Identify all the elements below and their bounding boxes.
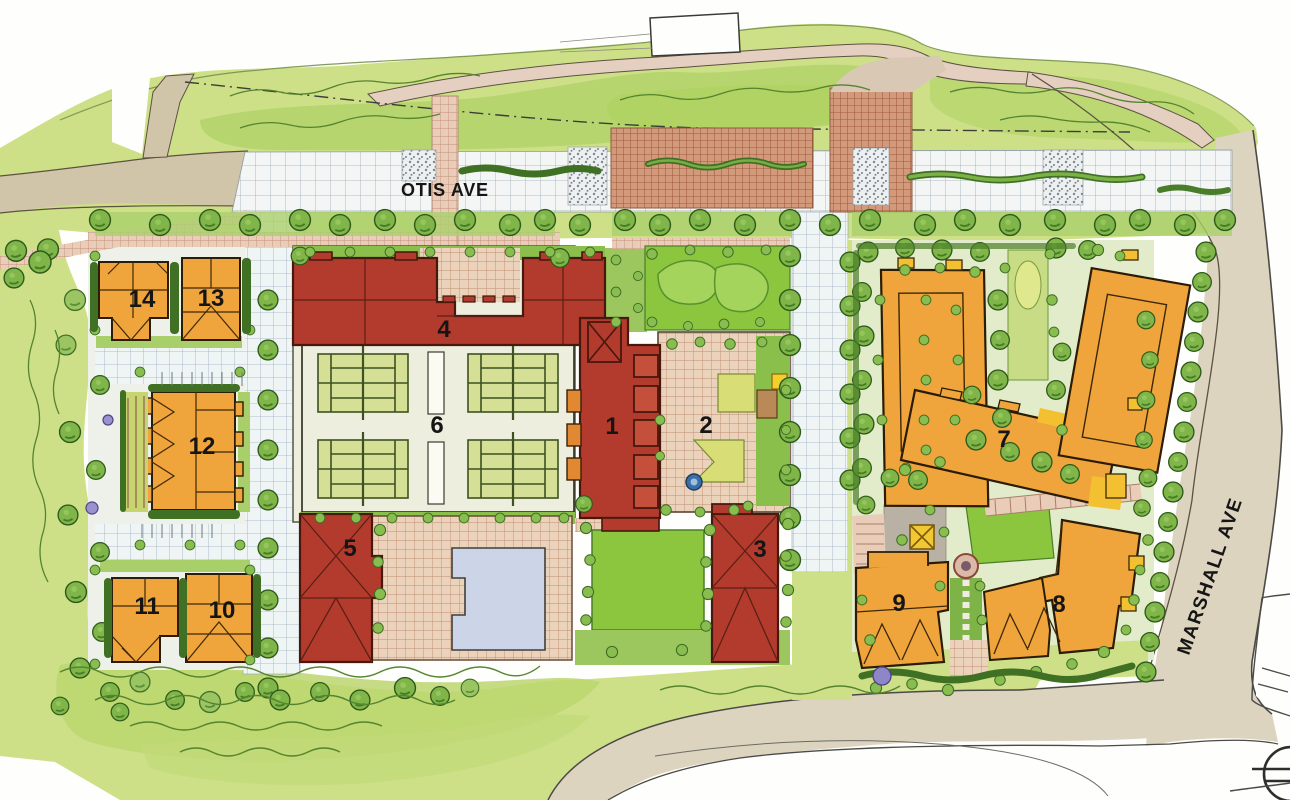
svg-text:5: 5	[343, 535, 356, 562]
svg-text:9: 9	[892, 590, 905, 617]
svg-text:OTIS AVE: OTIS AVE	[401, 180, 489, 200]
svg-text:4: 4	[437, 316, 451, 343]
svg-text:7: 7	[997, 426, 1010, 453]
svg-text:11: 11	[134, 593, 159, 620]
svg-text:10: 10	[209, 597, 236, 624]
svg-text:12: 12	[189, 433, 216, 460]
svg-text:2: 2	[699, 412, 712, 439]
svg-text:8: 8	[1052, 591, 1065, 618]
svg-text:6: 6	[430, 412, 443, 439]
svg-text:3: 3	[753, 536, 766, 563]
svg-text:13: 13	[198, 285, 225, 312]
svg-text:1: 1	[605, 413, 618, 440]
svg-text:14: 14	[129, 286, 156, 313]
